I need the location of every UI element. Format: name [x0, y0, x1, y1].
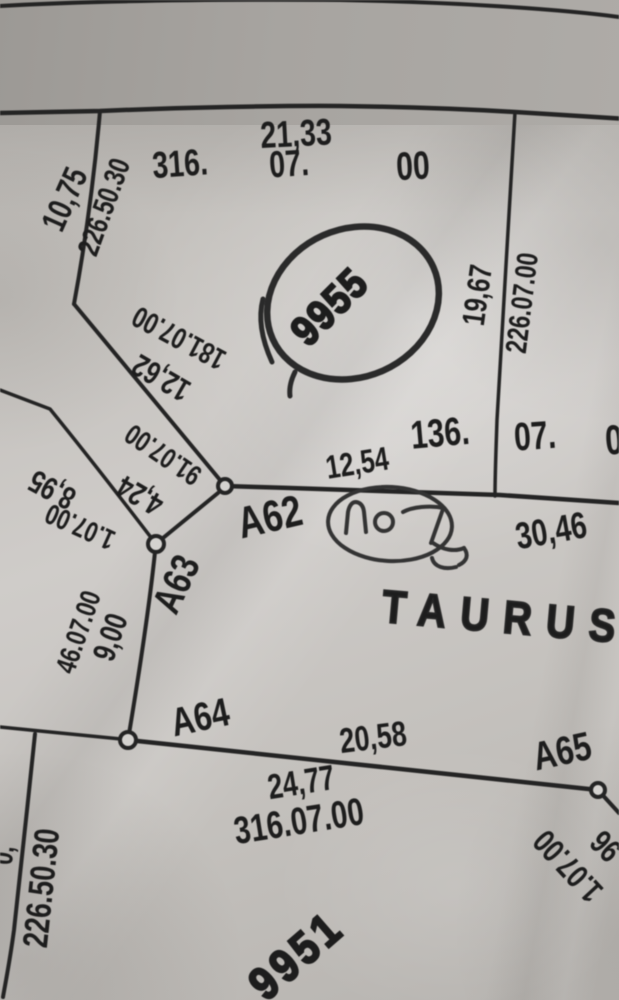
svg-text:TAURUS: TAURUS: [380, 581, 619, 654]
svg-text:20,58: 20,58: [337, 714, 409, 761]
svg-text:00: 00: [395, 144, 431, 190]
svg-text:9955: 9955: [282, 259, 378, 355]
svg-text:4,24: 4,24: [111, 468, 170, 523]
svg-text:12,54: 12,54: [323, 440, 392, 487]
svg-text:A64: A64: [167, 689, 234, 745]
svg-text:316.07.00: 316.07.00: [231, 790, 367, 853]
svg-text:1.07.00: 1.07.00: [41, 497, 120, 555]
svg-text:07.: 07.: [268, 142, 311, 186]
svg-text:A62: A62: [233, 486, 307, 548]
svg-text:A65: A65: [529, 723, 596, 779]
svg-text:0: 0: [603, 415, 619, 463]
svg-text:0,: 0,: [0, 844, 21, 867]
svg-text:19,67: 19,67: [456, 262, 500, 327]
svg-text:316.: 316.: [151, 142, 209, 187]
svg-text:07.: 07.: [513, 413, 558, 460]
svg-text:9951: 9951: [239, 901, 354, 1000]
svg-text:30,46: 30,46: [512, 505, 590, 558]
svg-text:136.: 136.: [409, 409, 471, 458]
